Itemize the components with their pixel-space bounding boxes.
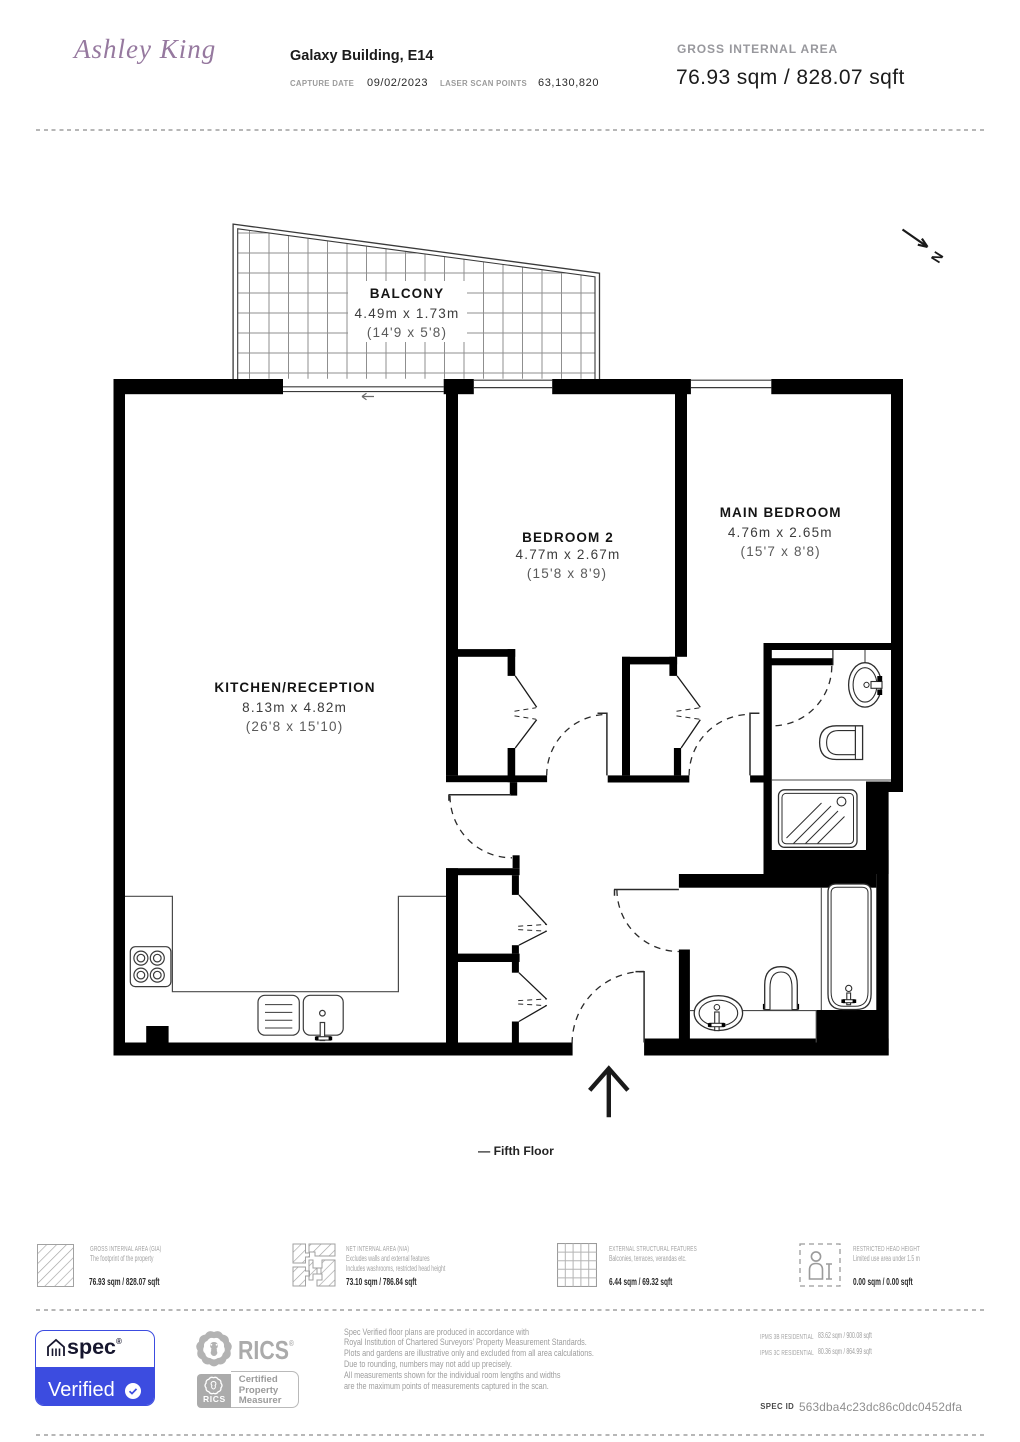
svg-text:N: N <box>928 249 947 266</box>
